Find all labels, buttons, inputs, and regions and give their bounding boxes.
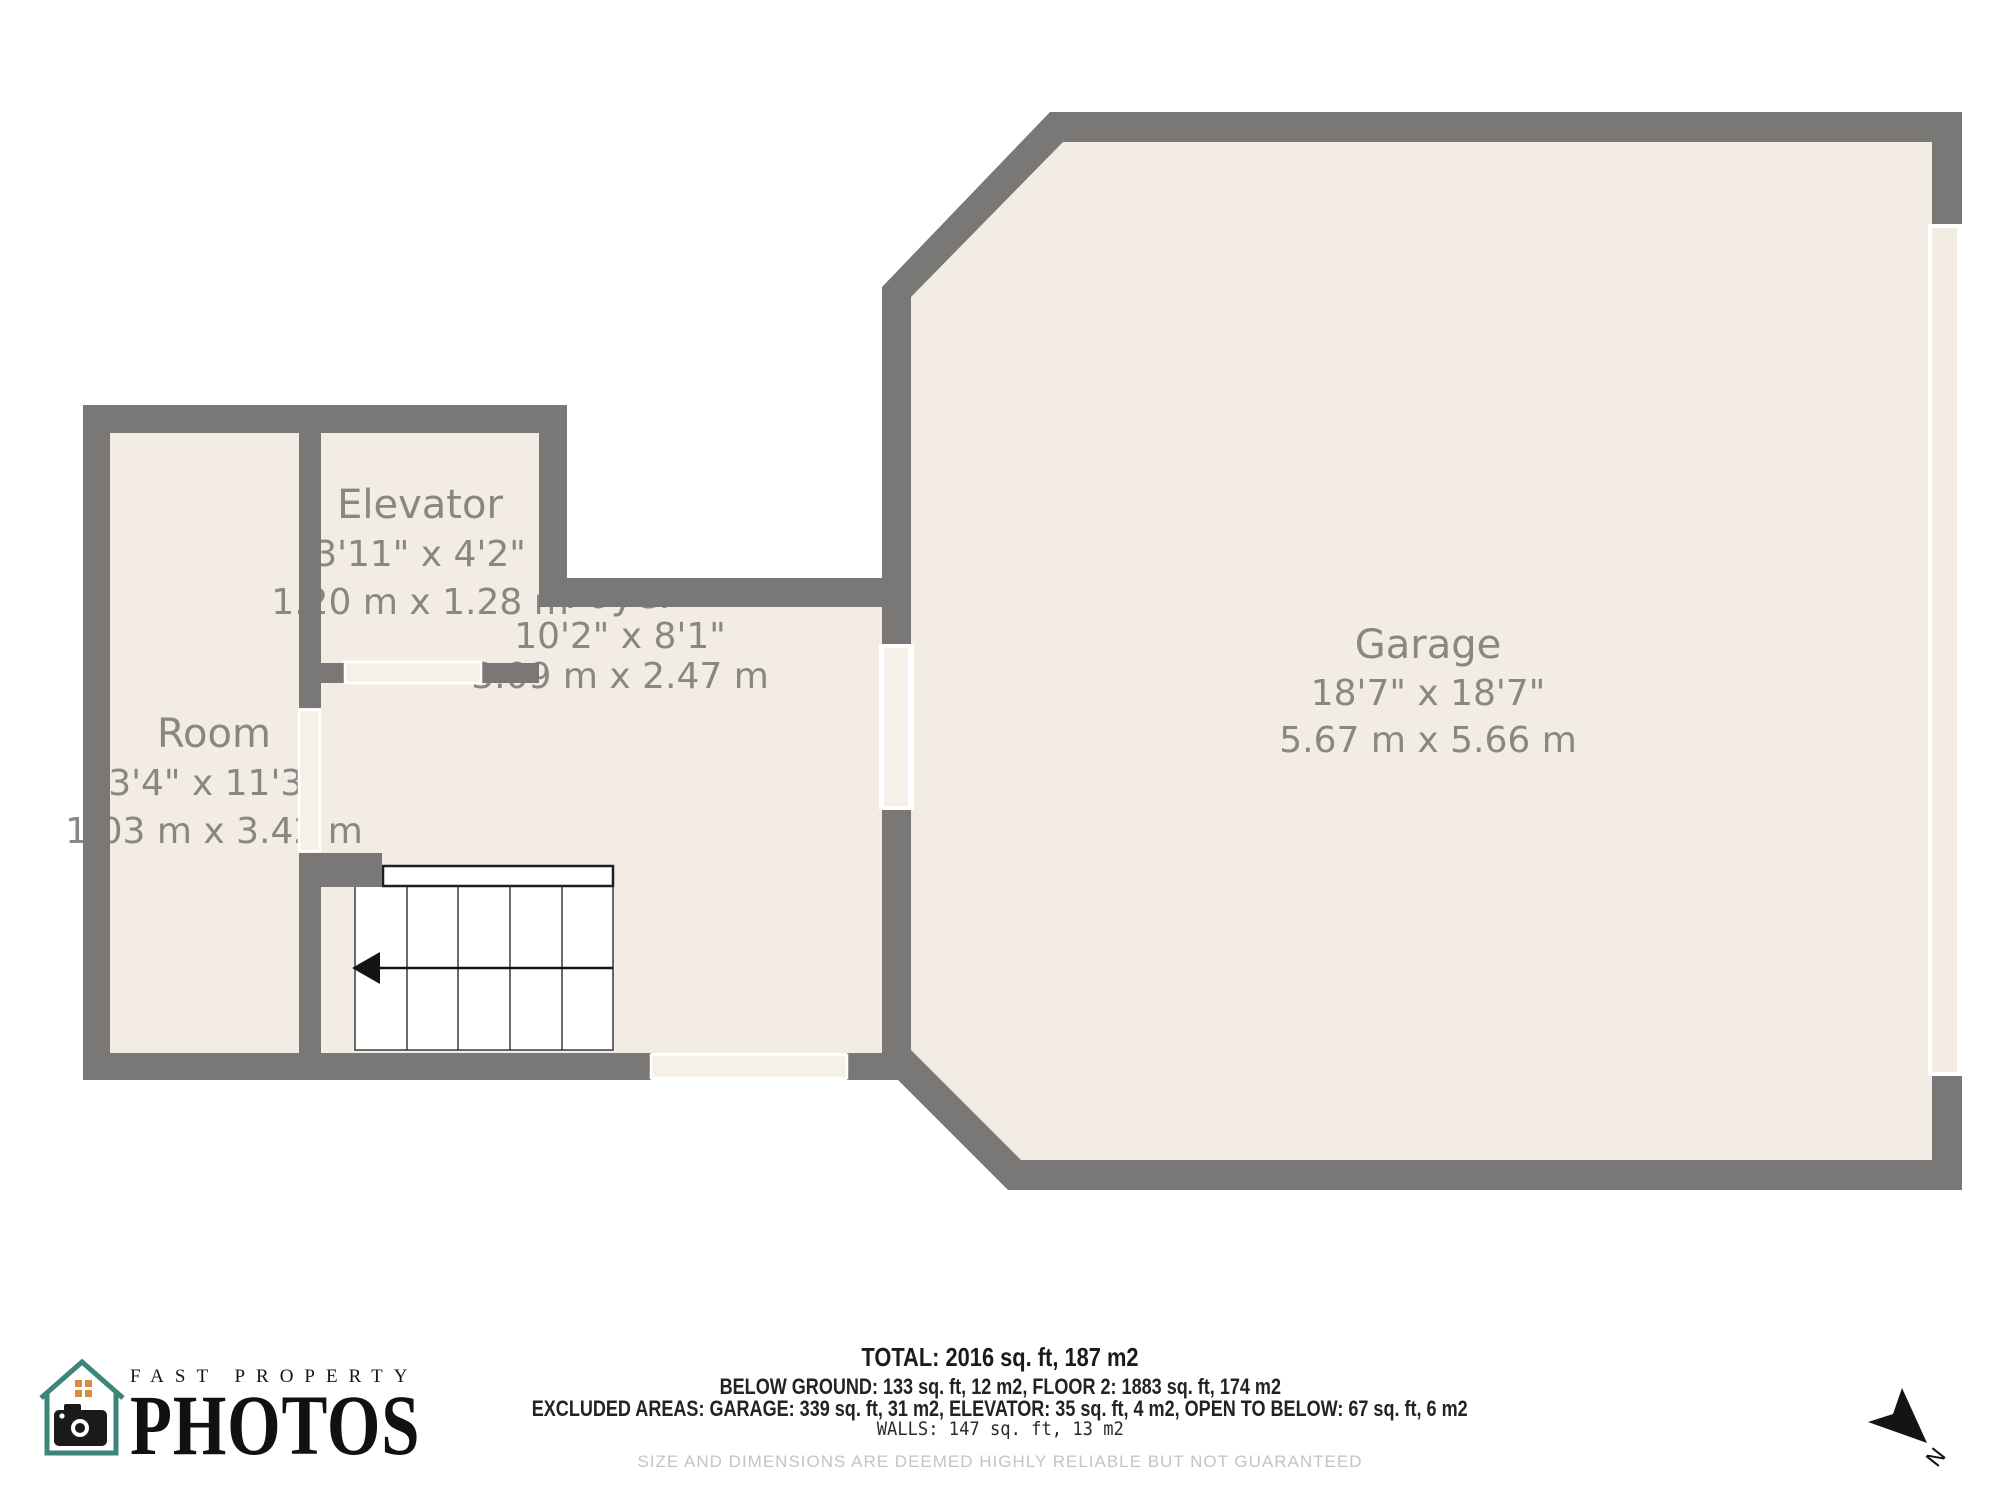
garage-size-metric: 5.67 m x 5.66 m xyxy=(1279,720,1577,761)
foyer-size-imperial: 10'2" x 8'1" xyxy=(514,616,726,657)
wall-foyer-top xyxy=(539,578,885,607)
garage-size-imperial: 18'7" x 18'7" xyxy=(1311,673,1546,714)
logo-text: FAST PROPERTY PHOTOS xyxy=(130,1356,493,1461)
elevator-name: Elevator xyxy=(337,482,503,528)
stair-landing xyxy=(383,866,613,886)
elevator-door-threshold xyxy=(345,662,481,683)
staircase xyxy=(352,866,613,1050)
room-name: Room xyxy=(157,711,271,757)
summary-disclaimer: SIZE AND DIMENSIONS ARE DEEMED HIGHLY RE… xyxy=(637,1452,1362,1471)
brand-name-bottom: PHOTOS xyxy=(130,1390,420,1461)
garage-side-door-threshold xyxy=(883,647,909,807)
room-size-imperial: 3'4" x 11'3" xyxy=(108,763,320,804)
wall-elevator-bottom-right xyxy=(481,663,539,683)
wall-left-exterior xyxy=(83,405,110,1080)
summary-walls: WALLS: 147 sq. ft, 13 m2 xyxy=(876,1418,1123,1440)
logo-house-camera-icon xyxy=(38,1356,126,1458)
garage-name: Garage xyxy=(1355,622,1501,668)
wall-left-block-bottom xyxy=(83,1053,651,1080)
wall-elevator-right xyxy=(539,405,567,607)
camera-icon xyxy=(54,1404,107,1446)
floor-plan-drawing: Elevator 3'11" x 4'2" 1.20 m x 1.28 m Ro… xyxy=(0,0,2000,1500)
brand-logo: FAST PROPERTY PHOTOS xyxy=(38,1356,493,1461)
summary-total: TOTAL: 2016 sq. ft, 187 m2 xyxy=(861,1342,1138,1373)
elevator-size-imperial: 3'11" x 4'2" xyxy=(314,534,526,575)
front-door-threshold xyxy=(651,1055,847,1078)
wall-elevator-bottom-left xyxy=(299,663,345,683)
room-door-threshold xyxy=(299,710,320,851)
wall-stair-stub xyxy=(299,853,382,887)
garage-door-threshold xyxy=(1931,227,1958,1073)
wall-left-block-top xyxy=(83,405,567,433)
floorplan-page: Elevator 3'11" x 4'2" 1.20 m x 1.28 m Ro… xyxy=(0,0,2000,1500)
house-window-icon xyxy=(75,1380,92,1397)
